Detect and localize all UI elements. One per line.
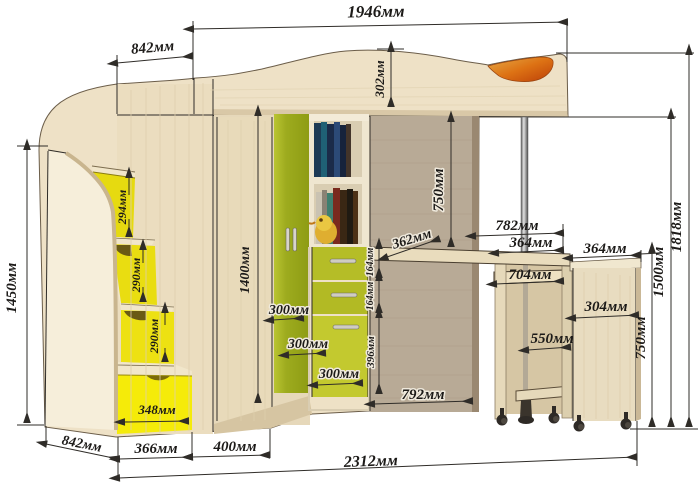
svg-text:164мм: 164мм — [365, 248, 376, 277]
svg-text:364мм: 364мм — [508, 235, 552, 251]
svg-text:366мм: 366мм — [133, 441, 177, 457]
svg-text:842мм: 842мм — [131, 38, 175, 58]
svg-text:782мм: 782мм — [495, 218, 538, 234]
svg-text:290мм: 290мм — [129, 258, 143, 293]
svg-text:750мм: 750мм — [633, 316, 649, 359]
svg-text:304мм: 304мм — [583, 299, 627, 315]
svg-text:704мм: 704мм — [508, 267, 551, 283]
svg-text:294мм: 294мм — [115, 190, 129, 225]
svg-text:290мм: 290мм — [147, 319, 161, 354]
svg-text:1450мм: 1450мм — [4, 263, 20, 314]
svg-text:164мм: 164мм — [365, 282, 376, 311]
svg-text:302мм: 302мм — [372, 60, 387, 98]
svg-text:348мм: 348мм — [137, 402, 175, 417]
svg-text:792мм: 792мм — [401, 387, 444, 403]
svg-text:364мм: 364мм — [582, 241, 626, 257]
svg-text:300мм: 300мм — [318, 367, 360, 382]
svg-text:550мм: 550мм — [530, 331, 573, 347]
svg-text:1946мм: 1946мм — [347, 1, 405, 21]
svg-text:400мм: 400мм — [212, 439, 256, 455]
svg-text:300мм: 300мм — [268, 303, 310, 318]
svg-text:300мм: 300мм — [287, 337, 329, 352]
svg-text:1500мм: 1500мм — [651, 247, 667, 298]
svg-text:2312мм: 2312мм — [343, 452, 399, 471]
svg-text:750мм: 750мм — [431, 168, 447, 211]
svg-text:396мм: 396мм — [365, 336, 377, 369]
svg-text:1400мм: 1400мм — [238, 246, 253, 294]
svg-text:842мм: 842мм — [61, 433, 104, 455]
svg-text:1818мм: 1818мм — [669, 202, 685, 253]
